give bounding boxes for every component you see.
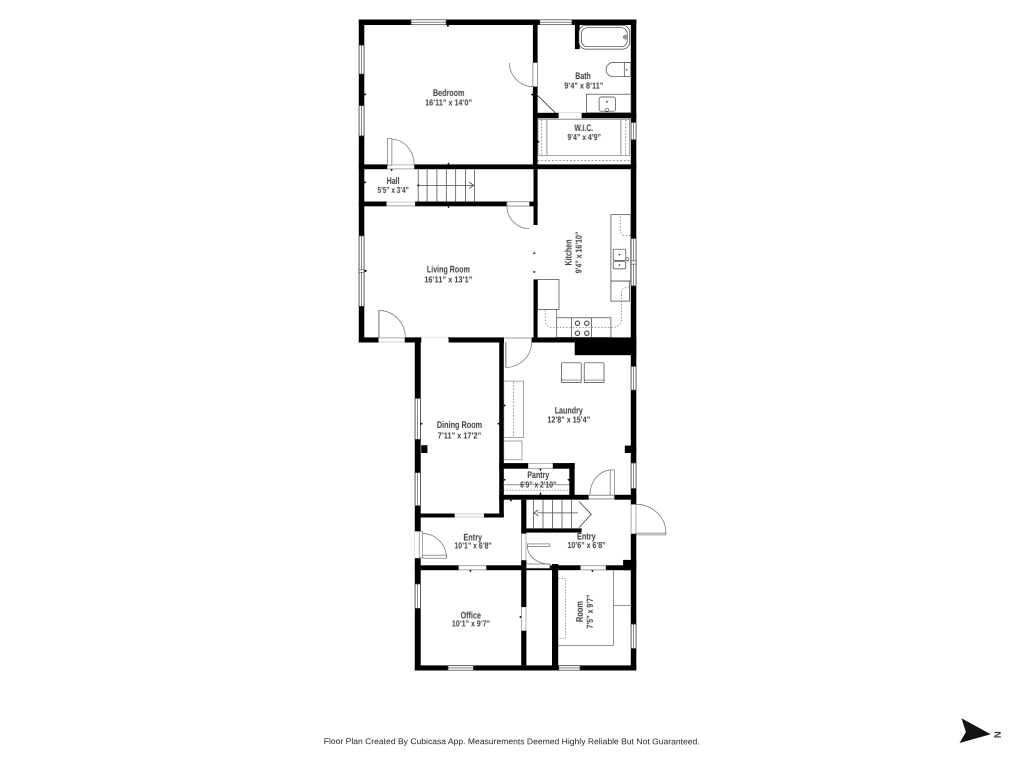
svg-text:10’1” x 9’7”: 10’1” x 9’7” [452, 619, 490, 629]
svg-text:Floor Plan Created By Cubicasa: Floor Plan Created By Cubicasa App. Meas… [324, 736, 700, 746]
svg-text:N: N [991, 731, 1002, 738]
svg-text:10’6” x 6’8”: 10’6” x 6’8” [567, 540, 605, 550]
svg-text:6’9” x 2’10”: 6’9” x 2’10” [520, 479, 556, 489]
svg-text:9’4” x 4’9”: 9’4” x 4’9” [567, 132, 601, 142]
svg-text:12’8” x 15’4”: 12’8” x 15’4” [547, 415, 590, 425]
svg-text:7’11” x 17’2”: 7’11” x 17’2” [438, 430, 482, 440]
svg-text:7’5” x 9’7”: 7’5” x 9’7” [585, 595, 595, 629]
svg-text:16’11” x 14’0”: 16’11” x 14’0” [425, 97, 472, 107]
svg-text:9’4” x 16’10”: 9’4” x 16’10” [573, 232, 583, 274]
svg-text:5’5” x 3’4”: 5’5” x 3’4” [377, 185, 408, 195]
svg-text:16’11” x 13’1”: 16’11” x 13’1” [424, 275, 472, 285]
svg-text:Dining Room: Dining Room [437, 420, 482, 431]
svg-text:9’4” x 8’11”: 9’4” x 8’11” [564, 81, 603, 91]
svg-text:10’1” x 6’8”: 10’1” x 6’8” [454, 541, 491, 551]
